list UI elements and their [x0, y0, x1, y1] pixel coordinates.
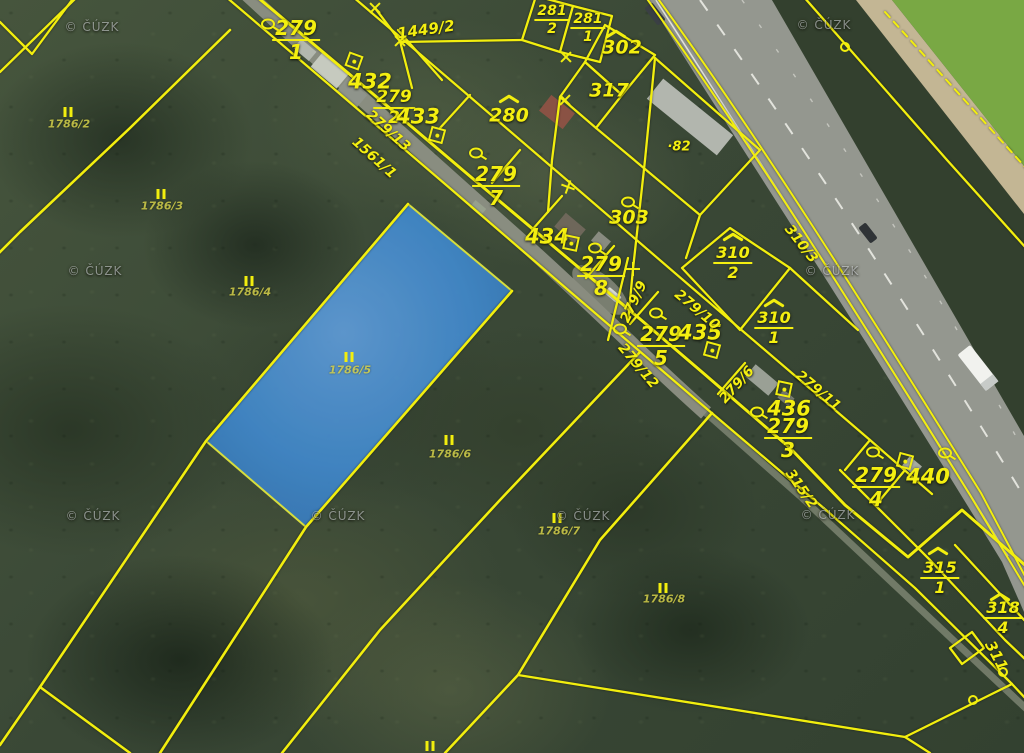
highlighted-parcel[interactable]	[206, 204, 512, 527]
map-canvas[interactable]: 2791279227972798279527932794281228113102…	[0, 0, 1024, 753]
